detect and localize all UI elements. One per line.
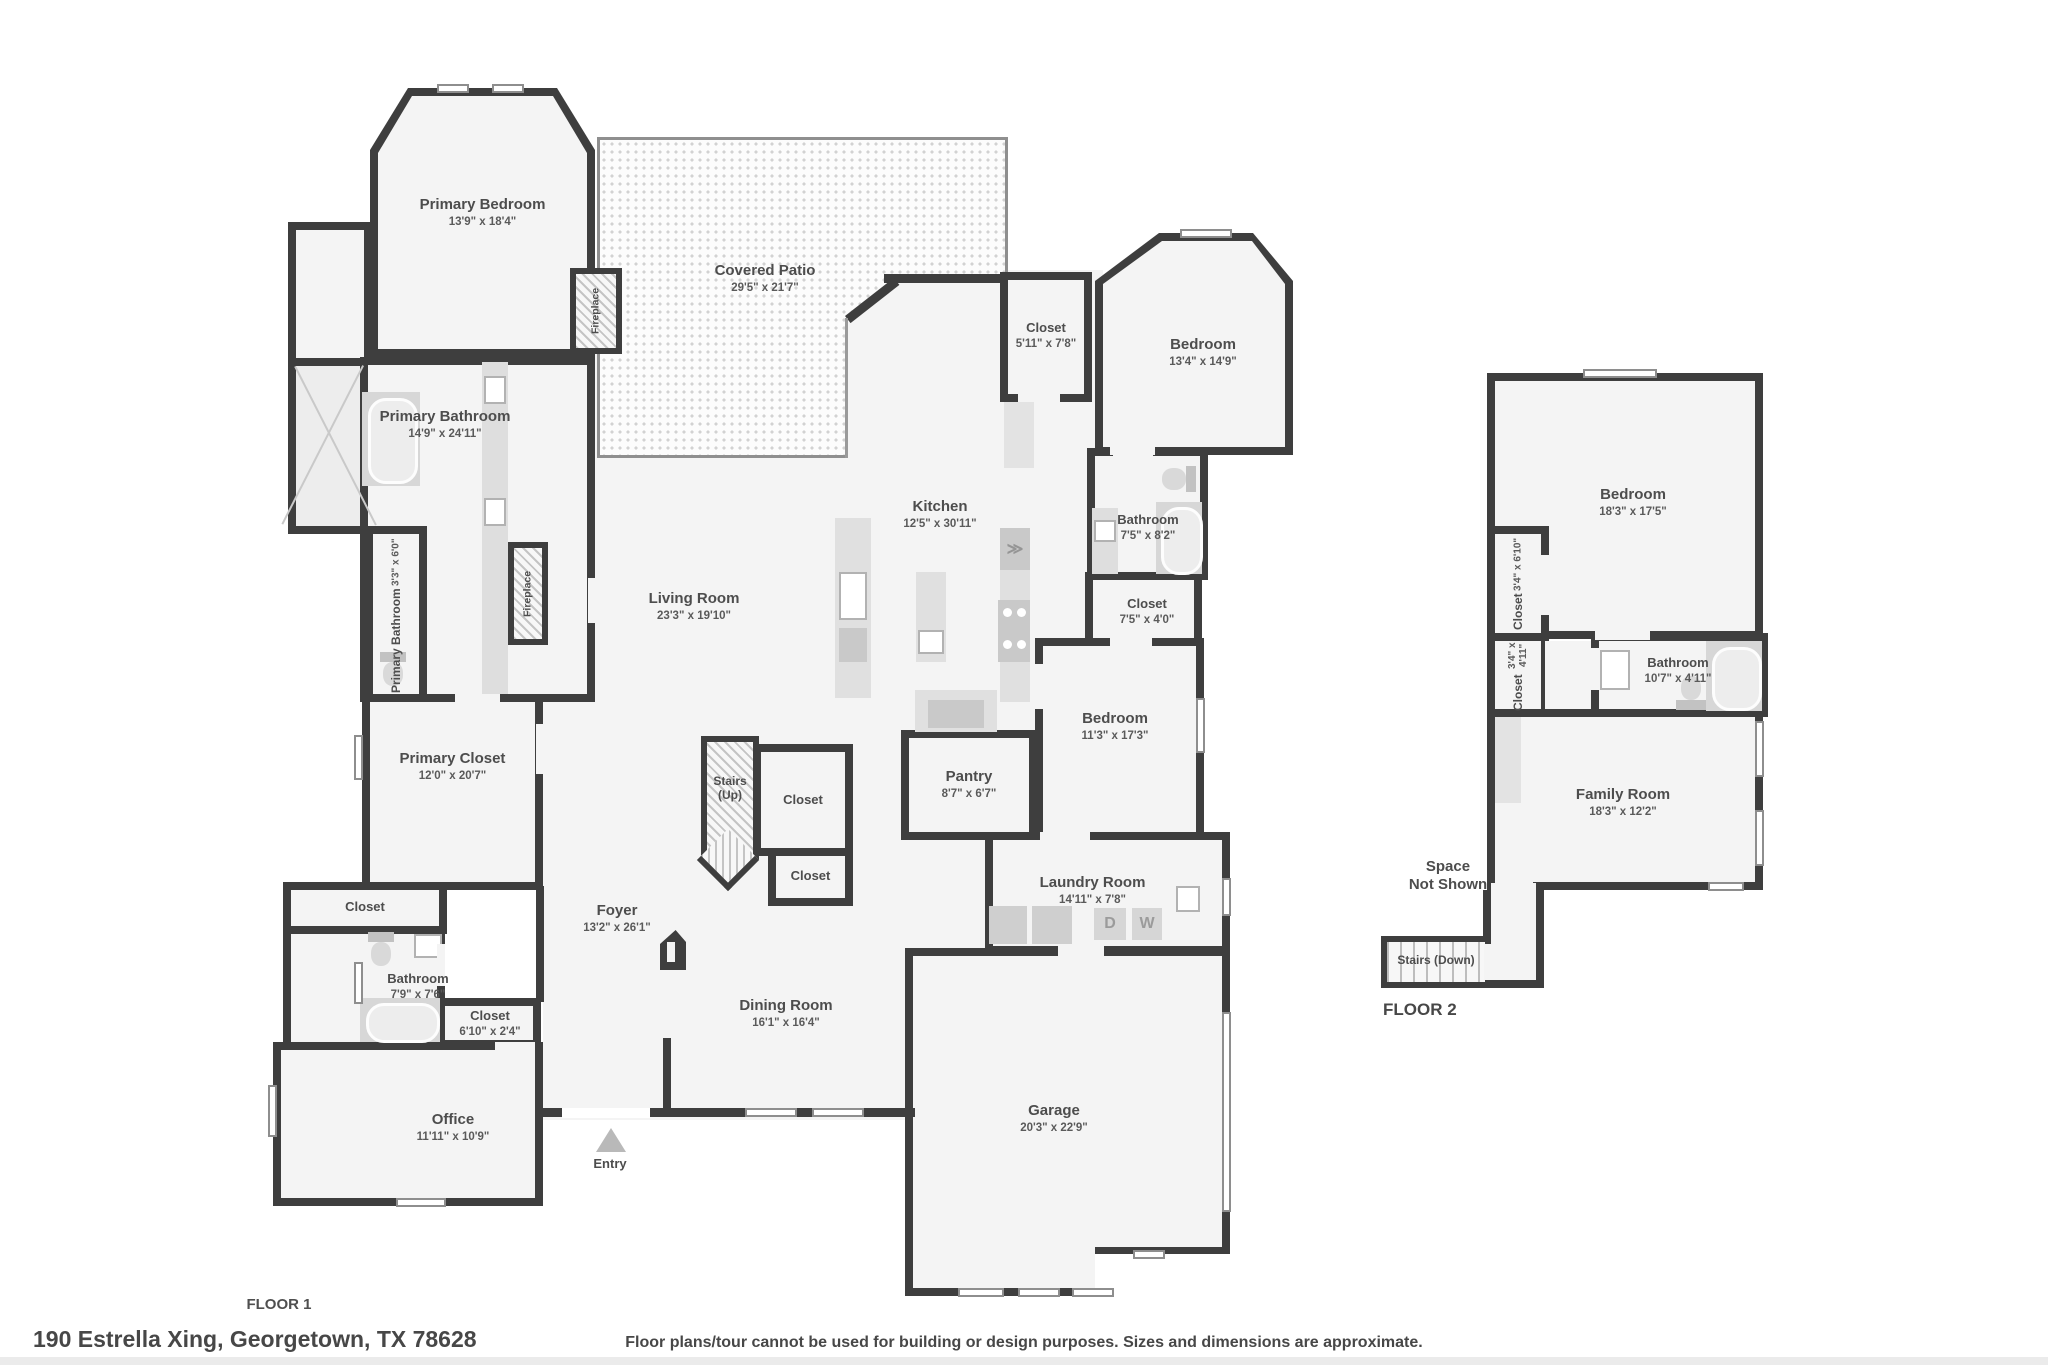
toilet-icon [1676,700,1706,710]
sink-icon [484,376,506,404]
room-name: Bedroom [1035,710,1195,728]
room-dims: 3'3" x 6'0" [391,539,402,587]
foyer-left-wall [536,886,544,1002]
dishwasher-icon [839,628,867,662]
label-closet-e: Closet 7'5" x 4'0" [1087,596,1207,626]
patio-kitchen-edge [845,318,848,458]
label-dining-room: Dining Room 16'1" x 16'4" [686,997,886,1029]
door-opening [1040,832,1090,840]
door-opening [1018,394,1060,402]
room-name: Closet [1511,674,1525,711]
label-f2-stairs-down: Stairs (Down) [1386,953,1486,967]
laundry-cabinet [1032,906,1072,944]
laundry-cabinet [989,906,1027,944]
label-primary-closet: Primary Closet 12'0" x 20'7" [362,750,543,782]
label-f2-bathroom: Bathroom 10'7" x 4'11" [1608,655,1748,685]
window [1755,810,1764,866]
room-dims: 14'11" x 7'8" [1000,894,1185,906]
window [1222,1012,1231,1212]
room-name: Bathroom [330,971,506,987]
window [745,1108,797,1117]
window [1196,698,1205,753]
room-name: Kitchen [860,498,1020,516]
room-name: Garage [954,1102,1154,1120]
room-name: Bathroom [1608,655,1748,671]
label-foyer: Foyer 13'2" x 26'1" [547,902,687,934]
disclaimer-text: Floor plans/tour cannot be used for buil… [0,1334,2048,1352]
room-name: Living Room [594,590,794,608]
room-dims: 11'3" x 17'3" [1035,730,1195,742]
window [958,1288,1004,1297]
room-name: Dining Room [686,997,886,1015]
room-name: Primary Bathroom [350,408,540,426]
label-f2-closet-a: Closet 3'4" x 6'10" [1493,534,1543,634]
label-entry: Entry [560,1156,660,1172]
window [1708,882,1744,891]
door-opening [1110,447,1155,455]
room-name: Foyer [547,902,687,920]
window [437,84,469,93]
toilet-icon [1186,466,1196,492]
room-name: Closet [285,899,445,915]
label-primary-bathroom-wc: Primary Bathroom 3'3" x 6'0" [372,538,420,694]
bottom-strip [0,1357,2048,1365]
room-primary-closet [362,694,543,890]
room-dims: 29'5" x 21'7" [640,282,890,294]
room-side-block [288,222,372,366]
label-primary-bathroom: Primary Bathroom 14'9" x 24'11" [350,408,540,440]
toilet-icon [368,932,394,942]
label-bedroom-ne: Bedroom 13'4" x 14'9" [1108,336,1298,368]
room-name: Family Room [1523,786,1723,804]
room-dims: 3'4" x 6'10" [1513,538,1524,591]
room-name: Primary Closet [362,750,543,768]
kitchen-sink-icon [839,572,867,620]
room-name: Space Not Shown [1388,858,1508,894]
sink-icon [484,498,506,526]
floor2-caption: FLOOR 2 [1383,1000,1457,1020]
window [1755,721,1764,777]
room-name: Closet [768,868,853,884]
room-name: Primary Bathroom [389,588,403,693]
window [1133,1250,1165,1259]
room-dims: 14'9" x 24'11" [350,428,540,440]
room-dims: 7'9" x 7'6" [330,989,506,1001]
label-f2-family-room: Family Room 18'3" x 12'2" [1523,786,1723,818]
counter [1495,717,1521,803]
room-name: Fireplace [590,288,603,334]
room-name: Primary Bedroom [370,196,595,214]
window [1018,1288,1060,1297]
kitchen-top-wall [884,274,1008,283]
f2-hall-fill [1545,641,1595,713]
room-dims: 5'11" x 7'8" [1000,338,1092,350]
label-fireplace-living: Fireplace [506,548,550,640]
label-closet-sw: Closet 6'10" x 2'4" [430,1008,550,1038]
burner-icon [1003,640,1012,649]
room-name: Closet [1511,593,1525,630]
fridge-icon: ≫ [1000,528,1030,570]
dryer-letter: D [1104,915,1116,933]
door-opening [455,694,500,702]
room-name: Stairs (Down) [1386,953,1486,967]
label-living-room: Living Room 23'3" x 19'10" [594,590,794,622]
room-dims: 13'4" x 14'9" [1108,356,1298,368]
window [1180,229,1232,238]
label-primary-bedroom: Primary Bedroom 13'9" x 18'4" [370,196,595,228]
room-name: Closet [1000,320,1092,336]
room-dims: 23'3" x 19'10" [594,610,794,622]
burner-icon [1017,640,1026,649]
room-dims: 7'5" x 8'2" [1082,530,1214,542]
room-name: Laundry Room [1000,874,1185,892]
room-dims: 20'3" x 22'9" [954,1122,1154,1134]
label-bathroom-w: Bathroom 7'9" x 7'6" [330,971,506,1001]
toilet-icon [371,942,391,966]
room-name: Entry [560,1156,660,1172]
hall-alcove [1004,402,1034,468]
label-covered-patio: Covered Patio 29'5" x 21'7" [640,262,890,294]
room-dims: 10'7" x 4'11" [1608,673,1748,685]
room-name: Fireplace [522,571,535,617]
window [268,1085,277,1137]
label-fireplace-bedroom: Fireplace [572,272,620,350]
room-name: Bedroom [1108,336,1298,354]
door-opening [1595,631,1650,640]
entry-arrow-icon [596,1128,626,1152]
room-name: Pantry [903,768,1035,786]
entry-door-opening [562,1108,650,1118]
room-dims: 7'5" x 4'0" [1087,614,1207,626]
room-name: Bedroom [1533,486,1733,504]
door-opening [1591,648,1600,690]
window [812,1108,864,1117]
room-dims: 18'3" x 17'5" [1533,506,1733,518]
label-bathroom-e: Bathroom 7'5" x 8'2" [1082,512,1214,542]
door-opening [1058,944,1104,958]
f2-corridor-fill [1491,883,1537,983]
washer-icon: W [1132,908,1162,940]
window [396,1198,446,1207]
door-opening [495,1042,535,1050]
room-name: Stairs (Up) [698,774,762,803]
room-name: Bathroom [1082,512,1214,528]
label-pantry: Pantry 8'7" x 6'7" [903,768,1035,800]
bathtub-icon [366,1003,440,1043]
label-bedroom-e: Bedroom 11'3" x 17'3" [1035,710,1195,742]
kitchen-cabinet [928,700,984,728]
room-name: Closet [755,792,851,808]
room-dims: 8'7" x 6'7" [903,788,1035,800]
window [1222,878,1231,916]
burner-icon [1003,608,1012,617]
dryer-icon: D [1094,908,1126,940]
room-dims: 3'4" x 4'11" [1507,639,1529,672]
room-dims: 12'0" x 20'7" [362,770,543,782]
floor-plan-canvas: ≫ D W [0,0,2048,1365]
f2-corridor-bottom-wall [1491,980,1544,988]
room-dims: 12'5" x 30'11" [860,518,1020,530]
f2-corridor-right-wall [1536,883,1544,988]
label-f2-space-not-shown: Space Not Shown [1388,858,1508,894]
label-f2-bedroom: Bedroom 18'3" x 17'5" [1533,486,1733,518]
label-kitchen: Kitchen 12'5" x 30'11" [860,498,1020,530]
label-f2-closet-b: Closet 3'4" x 4'11" [1493,639,1543,711]
label-closet-hall: Closet 5'11" x 7'8" [1000,320,1092,350]
label-stairs-up: Stairs (Up) [698,774,762,803]
room-name: Closet [1087,596,1207,612]
toilet-icon [1162,468,1186,490]
window [1072,1288,1114,1297]
door-opening [1035,664,1043,709]
room-dims: 11'11" x 10'9" [363,1131,543,1143]
room-name: Office [363,1111,543,1129]
room-dims: 13'2" x 26'1" [547,922,687,934]
room-dims: 16'1" x 16'4" [686,1017,886,1029]
label-closet-w: Closet [285,899,445,915]
sink-icon [918,630,944,654]
floor1-caption: FLOOR 1 [224,1296,334,1313]
label-closet-stairs-b: Closet [768,868,853,884]
door-opening [1110,638,1152,646]
room-dims: 13'9" x 18'4" [370,216,595,228]
label-closet-stairs-a: Closet [755,792,851,808]
label-garage: Garage 20'3" x 22'9" [954,1102,1154,1134]
room-dims: 18'3" x 12'2" [1523,806,1723,818]
dining-stub-wall [663,1038,671,1116]
window [1583,369,1657,378]
burner-icon [1017,608,1026,617]
washer-letter: W [1139,915,1154,933]
window [492,84,524,93]
room-name: Covered Patio [640,262,890,280]
f2-corridor-left-wall [1483,890,1491,938]
label-laundry: Laundry Room 14'11" x 7'8" [1000,874,1185,906]
room-name: Closet [430,1008,550,1024]
label-office: Office 11'11" x 10'9" [363,1111,543,1143]
room-dims: 6'10" x 2'4" [430,1026,550,1038]
